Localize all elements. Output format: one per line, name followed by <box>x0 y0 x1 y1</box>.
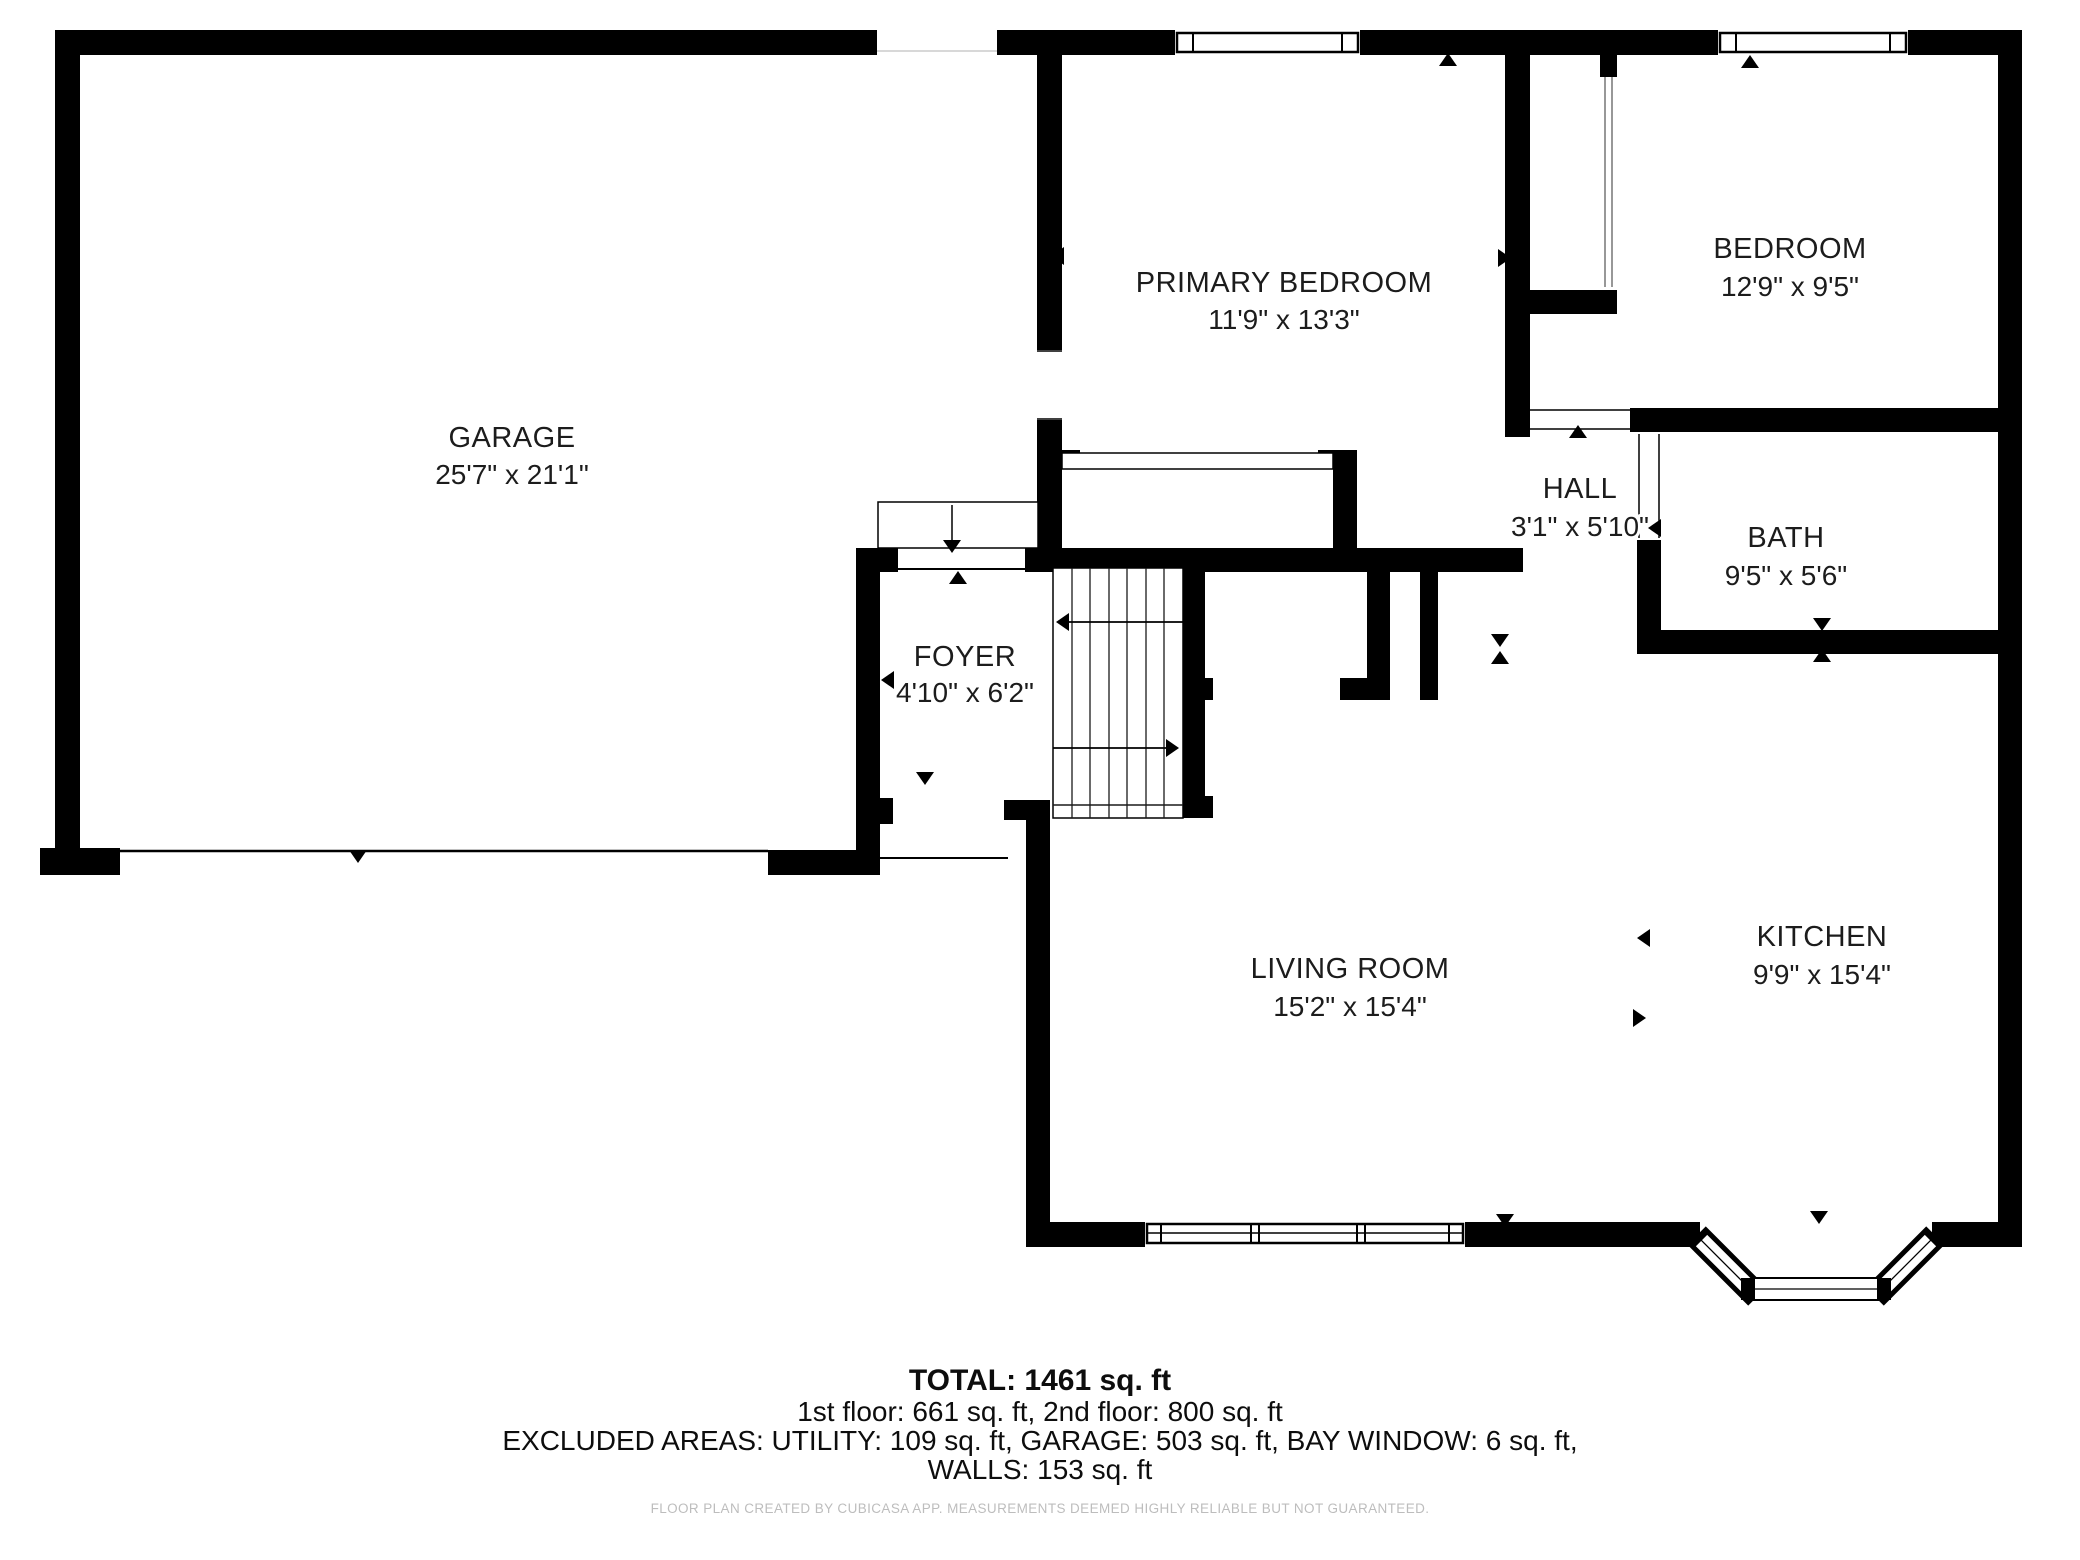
wall-segment <box>862 548 898 572</box>
room-dims-bath: 9'5" x 5'6" <box>1725 560 1847 591</box>
excluded-areas-text: EXCLUDED AREAS: UTILITY: 109 sq. ft, GAR… <box>0 1426 2080 1455</box>
wall-segment <box>1998 30 2022 1222</box>
floor-plan-drawing: GARAGE 25'7" x 21'1" PRIMARY BEDROOM 11'… <box>0 0 2080 1560</box>
marker-icon <box>349 850 367 863</box>
closet-slider-primary <box>1062 453 1333 469</box>
total-area-text: TOTAL: 1461 sq. ft <box>0 1364 2080 1397</box>
room-dims-kitchen: 9'9" x 15'4" <box>1753 959 1891 990</box>
marker-icon <box>916 772 934 785</box>
marker-icon <box>1491 651 1509 664</box>
wall-segment <box>1026 1222 1145 1247</box>
marker-icon <box>1813 618 1831 631</box>
staircase <box>1053 568 1183 818</box>
room-label-bath: BATH <box>1747 522 1824 554</box>
wall-segment <box>768 850 880 875</box>
door-bedroom <box>1530 410 1630 429</box>
room-label-bedroom: BEDROOM <box>1713 233 1866 265</box>
room-dims-primary-bedroom: 11'9" x 13'3" <box>1208 304 1359 335</box>
floor-plan-page: GARAGE 25'7" x 21'1" PRIMARY BEDROOM 11'… <box>0 0 2080 1560</box>
marker-icon <box>1491 634 1509 647</box>
wall-segment <box>1340 678 1390 700</box>
area-summary: TOTAL: 1461 sq. ft 1st floor: 661 sq. ft… <box>0 1364 2080 1516</box>
room-dims-living-room: 15'2" x 15'4" <box>1273 991 1427 1022</box>
wall-segment <box>1630 408 2022 432</box>
floor-areas-text: 1st floor: 661 sq. ft, 2nd floor: 800 sq… <box>0 1397 2080 1426</box>
marker-icon <box>1648 519 1661 537</box>
wall-segment <box>1637 630 2022 654</box>
wall-segment <box>55 30 877 55</box>
window-primary-bedroom <box>1175 28 1360 57</box>
wall-segment <box>1465 1222 1700 1247</box>
wall-segment <box>1505 290 1617 314</box>
wall-segment <box>1367 548 1390 700</box>
marker-icon <box>1633 1009 1646 1027</box>
disclaimer-text: FLOOR PLAN CREATED BY CUBICASA APP. MEAS… <box>0 1501 2080 1516</box>
wall-segment <box>1420 572 1438 700</box>
room-label-living-room: LIVING ROOM <box>1251 953 1450 985</box>
wall-segment <box>40 848 120 875</box>
wall-segment <box>1004 800 1050 820</box>
room-label-garage: GARAGE <box>448 422 575 454</box>
room-label-kitchen: KITCHEN <box>1757 921 1888 953</box>
wall-segment <box>1505 55 1530 437</box>
marker-icon <box>1569 425 1587 438</box>
room-dims-bedroom: 12'9" x 9'5" <box>1721 271 1859 302</box>
wall-segment <box>1037 55 1062 548</box>
wall-segment <box>997 30 1175 55</box>
room-label-hall: HALL <box>1543 473 1618 505</box>
wall-segment <box>1360 30 1718 55</box>
marker-icon <box>1810 1211 1828 1224</box>
room-dims-garage: 25'7" x 21'1" <box>435 459 589 490</box>
wall-segment <box>1600 55 1617 77</box>
window-living-room <box>1145 1220 1465 1249</box>
room-label-primary-bedroom: PRIMARY BEDROOM <box>1136 267 1432 299</box>
doors-openings <box>120 77 1659 858</box>
room-label-foyer: FOYER <box>914 641 1016 673</box>
marker-icon <box>949 571 967 584</box>
closet-slider-bedroom <box>1605 77 1612 287</box>
marker-icon <box>881 671 894 689</box>
wall-segment <box>856 548 880 875</box>
wall-segment <box>1183 796 1213 818</box>
wall-segment <box>1026 818 1050 1222</box>
window-bedroom <box>1718 28 1908 57</box>
walls-area-text: WALLS: 153 sq. ft <box>0 1455 2080 1484</box>
wall-segment <box>1932 1222 2022 1247</box>
room-dims-hall: 3'1" x 5'10" <box>1511 511 1649 542</box>
room-dims-foyer: 4'10" x 6'2" <box>896 677 1034 708</box>
marker-icon <box>1637 929 1650 947</box>
wall-segment <box>880 798 893 824</box>
wall-segment <box>55 30 80 848</box>
door-primary-bedroom <box>1037 350 1062 420</box>
bay-window <box>1687 1226 1944 1305</box>
wall-segment <box>1183 678 1213 700</box>
interior-walls <box>862 55 2022 818</box>
